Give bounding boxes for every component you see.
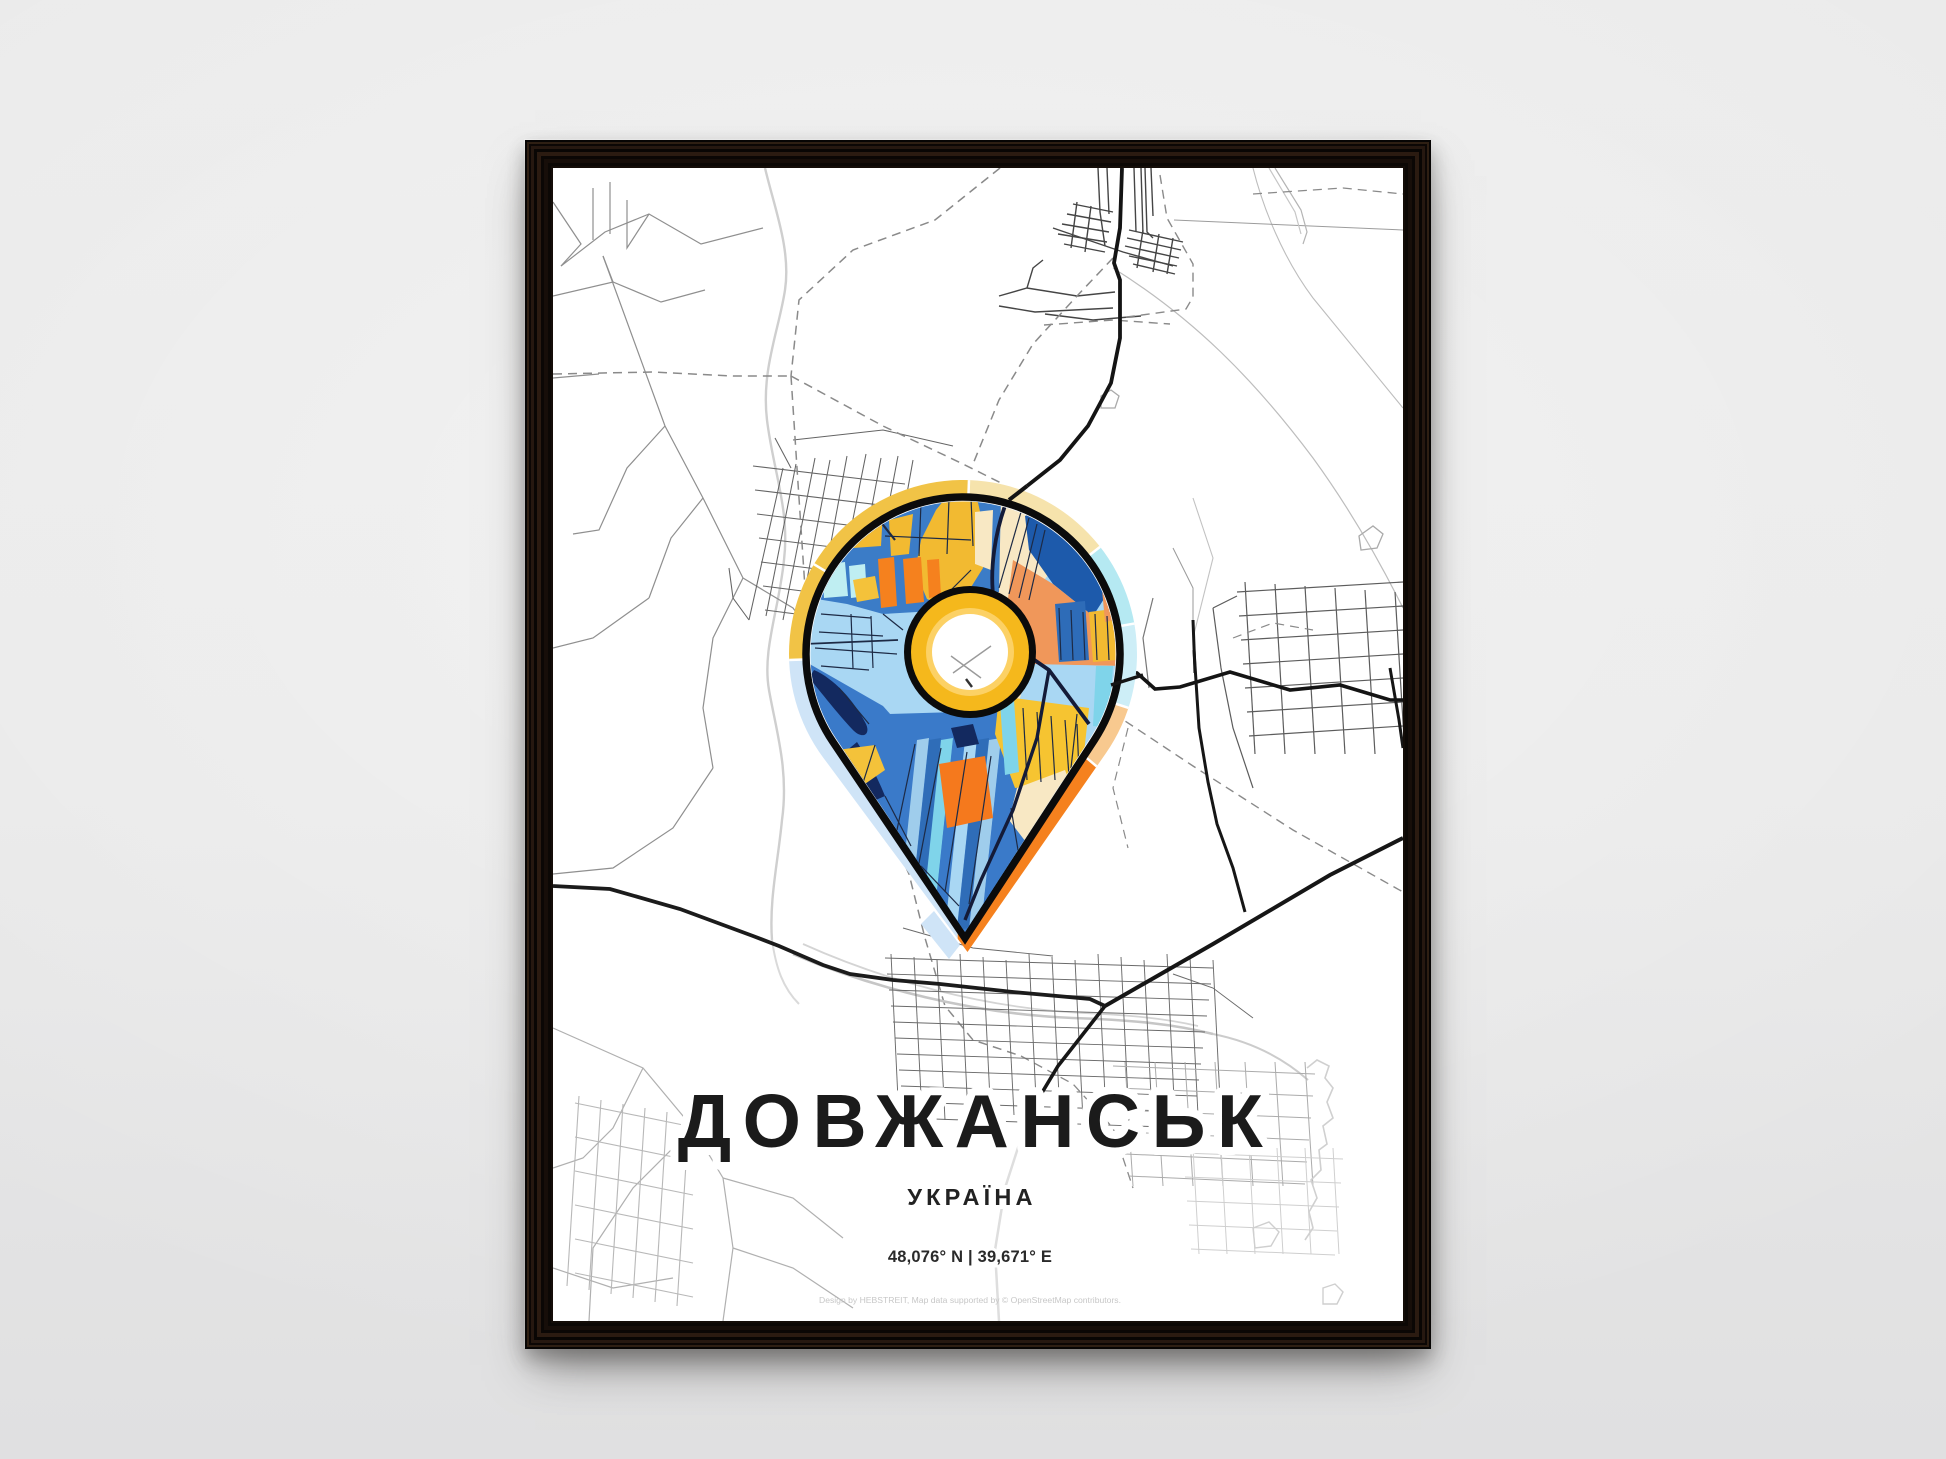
svg-text:48,076° N | 39,671° E: 48,076° N | 39,671° E (888, 1248, 1052, 1266)
svg-text:Design by HEBSTREIT, Map data: Design by HEBSTREIT, Map data supported … (819, 1295, 1121, 1305)
svg-text:ДОВЖАНСЬК: ДОВЖАНСЬК (678, 1079, 1275, 1163)
svg-text:УКРАЇНА: УКРАЇНА (907, 1184, 1036, 1210)
